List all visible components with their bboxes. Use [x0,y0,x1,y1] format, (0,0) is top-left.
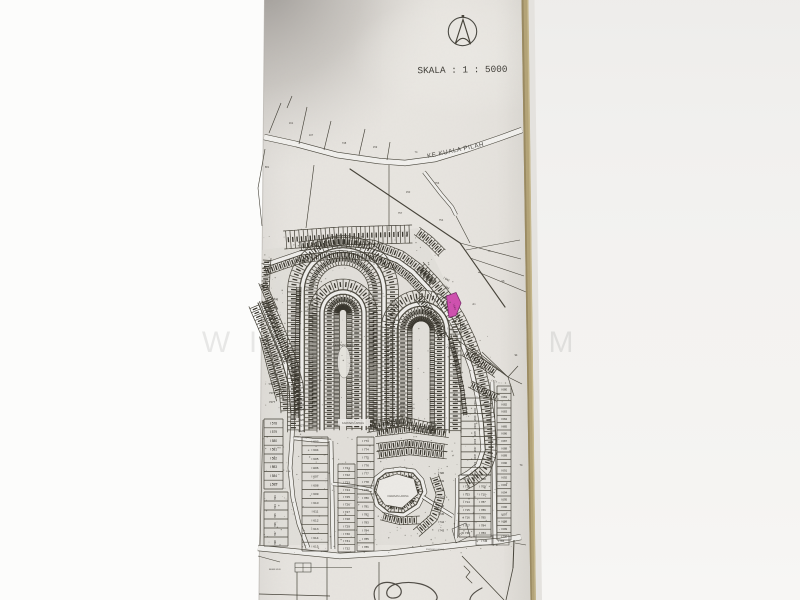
svg-text:I: I [249,326,257,359]
svg-text:W: W [202,326,231,359]
svg-text:M: M [549,326,574,359]
